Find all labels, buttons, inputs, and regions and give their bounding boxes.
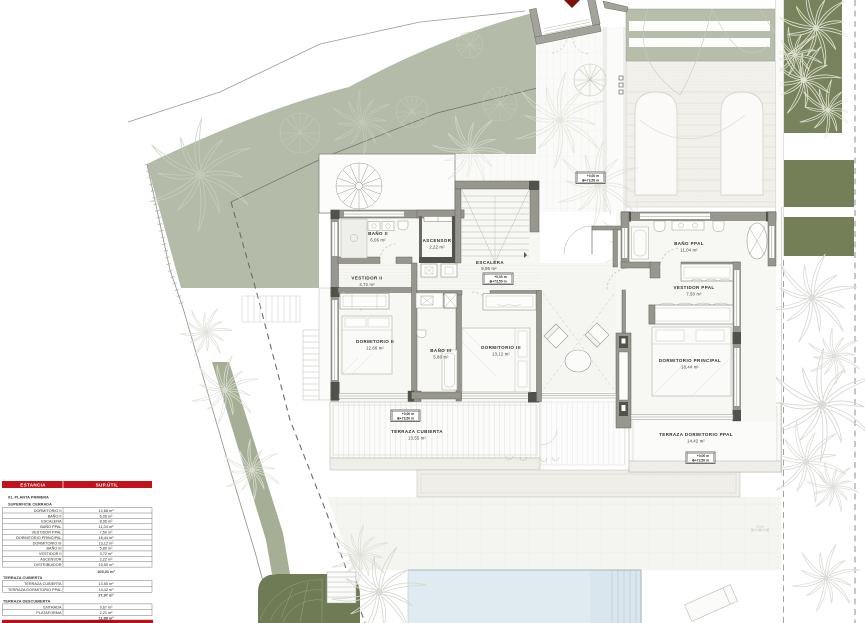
svg-text:12,66 m²: 12,66 m² bbox=[99, 509, 115, 513]
svg-text:+0,00 m: +0,00 m bbox=[402, 412, 415, 416]
svg-text:DORMITORIO PRINCIPAL: DORMITORIO PRINCIPAL bbox=[16, 536, 61, 540]
svg-text:105,01 m²: 105,01 m² bbox=[97, 569, 115, 574]
svg-text:DORMITORIO II: DORMITORIO II bbox=[356, 339, 394, 344]
svg-text:BAÑO III: BAÑO III bbox=[430, 347, 451, 353]
svg-text:BAÑO PPAL: BAÑO PPAL bbox=[674, 240, 704, 246]
svg-text:3,72 m²: 3,72 m² bbox=[100, 552, 114, 556]
svg-text:DISTRIBUIDOR: DISTRIBUIDOR bbox=[34, 563, 61, 567]
svg-text:TERRAZA CUBIERTA: TERRAZA CUBIERTA bbox=[391, 429, 443, 434]
svg-text:⊕+73,50 m: ⊕+73,50 m bbox=[397, 417, 414, 421]
svg-text:BAÑO II: BAÑO II bbox=[48, 513, 62, 518]
svg-text:6,06 m²: 6,06 m² bbox=[370, 238, 386, 243]
svg-text:8,96 m²: 8,96 m² bbox=[481, 266, 497, 271]
svg-text:VESTIDOR II: VESTIDOR II bbox=[39, 552, 62, 556]
svg-text:+0,00 m: +0,00 m bbox=[494, 275, 507, 279]
svg-text:5,80 m²: 5,80 m² bbox=[100, 547, 114, 551]
svg-text:⊕+73,50 m: ⊕+73,50 m bbox=[489, 280, 506, 284]
svg-text:01. PLANTA PRIMERA: 01. PLANTA PRIMERA bbox=[8, 495, 49, 500]
svg-text:11,04 m²: 11,04 m² bbox=[680, 248, 698, 253]
svg-text:9,67 m²: 9,67 m² bbox=[100, 605, 114, 609]
svg-text:15,50 m²: 15,50 m² bbox=[99, 563, 115, 567]
svg-text:VESTIDOR II: VESTIDOR II bbox=[351, 276, 382, 281]
svg-text:BAÑO PPAL: BAÑO PPAL bbox=[40, 524, 61, 529]
svg-text:14,42 m²: 14,42 m² bbox=[687, 439, 705, 444]
svg-text:3,72 m²: 3,72 m² bbox=[359, 282, 375, 287]
svg-text:BAÑO II: BAÑO II bbox=[368, 230, 388, 236]
svg-text:ESCALERA: ESCALERA bbox=[476, 260, 504, 265]
svg-text:0 1m: 0 1m bbox=[757, 525, 764, 529]
svg-text:SUPERFICIE CERRADA: SUPERFICIE CERRADA bbox=[8, 502, 52, 507]
svg-text:ASCENSOR: ASCENSOR bbox=[40, 558, 62, 562]
svg-text:⊕+73,50 m: ⊕+73,50 m bbox=[692, 459, 709, 463]
svg-text:DORMITORIO III: DORMITORIO III bbox=[33, 541, 62, 545]
svg-text:13,12 m²: 13,12 m² bbox=[99, 541, 115, 545]
svg-text:ESTANCIA: ESTANCIA bbox=[20, 482, 46, 487]
svg-text:5,80 m²: 5,80 m² bbox=[433, 355, 449, 360]
svg-text:DORMITORIO II: DORMITORIO II bbox=[34, 509, 62, 513]
svg-text:11,04 m²: 11,04 m² bbox=[99, 525, 114, 529]
svg-text:27,97 m²: 27,97 m² bbox=[98, 593, 114, 598]
svg-text:TOTAL SUPERFICIE ÚTIL PLANTA P: TOTAL SUPERFICIE ÚTIL PLANTA PRIMERA 144… bbox=[41, 619, 113, 623]
svg-text:VESTIDOR PPAL: VESTIDOR PPAL bbox=[673, 285, 714, 290]
svg-text:ESCALERA: ESCALERA bbox=[41, 520, 62, 524]
svg-text:⊕+73,50 m: ⊕+73,50 m bbox=[582, 179, 599, 183]
svg-text:ENTRADA: ENTRADA bbox=[43, 605, 62, 609]
svg-text:7,50 m²: 7,50 m² bbox=[100, 531, 114, 535]
svg-text:TERRAZA DORMITORIO PPAL: TERRAZA DORMITORIO PPAL bbox=[8, 588, 62, 592]
svg-text:TERRAZA DORMITORIO PPAL: TERRAZA DORMITORIO PPAL bbox=[659, 432, 733, 437]
svg-text:TERRAZA DESCUBIERTA: TERRAZA DESCUBIERTA bbox=[3, 599, 51, 604]
svg-text:12,66 m²: 12,66 m² bbox=[366, 346, 384, 351]
svg-text:BAÑO III: BAÑO III bbox=[47, 546, 62, 551]
svg-text:18,44 m²: 18,44 m² bbox=[99, 536, 115, 540]
svg-text:8,96 m²: 8,96 m² bbox=[100, 520, 114, 524]
svg-text:7,50 m²: 7,50 m² bbox=[686, 292, 702, 297]
svg-text:TERRAZA CUBIERTA: TERRAZA CUBIERTA bbox=[24, 582, 62, 586]
svg-text:DORMITORIO III: DORMITORIO III bbox=[481, 345, 521, 350]
svg-text:13,55 m²: 13,55 m² bbox=[99, 582, 115, 586]
svg-text:SUP.ÚTIL: SUP.ÚTIL bbox=[96, 481, 119, 487]
svg-text:14,42 m²: 14,42 m² bbox=[99, 588, 115, 592]
svg-text:18,44 m²: 18,44 m² bbox=[681, 365, 699, 370]
svg-text:2,22 m²: 2,22 m² bbox=[429, 245, 445, 250]
svg-text:2,22 m²: 2,22 m² bbox=[100, 558, 114, 562]
svg-text:DORMITORIO PRINCIPAL: DORMITORIO PRINCIPAL bbox=[659, 358, 721, 363]
svg-text:+0,00 m: +0,00 m bbox=[587, 174, 600, 178]
svg-text:+0,00 m: +0,00 m bbox=[697, 454, 710, 458]
svg-text:TERRAZA CUBIERTA: TERRAZA CUBIERTA bbox=[3, 575, 43, 580]
svg-text:PLATAFORMA: PLATAFORMA bbox=[36, 611, 62, 615]
svg-text:13,12 m²: 13,12 m² bbox=[492, 352, 510, 357]
svg-text:ASCENSOR: ASCENSOR bbox=[423, 238, 452, 243]
svg-text:6,06 m²: 6,06 m² bbox=[100, 514, 114, 518]
svg-text:VESTIDOR PPAL: VESTIDOR PPAL bbox=[32, 531, 62, 535]
svg-text:13,55 m²: 13,55 m² bbox=[408, 436, 426, 441]
